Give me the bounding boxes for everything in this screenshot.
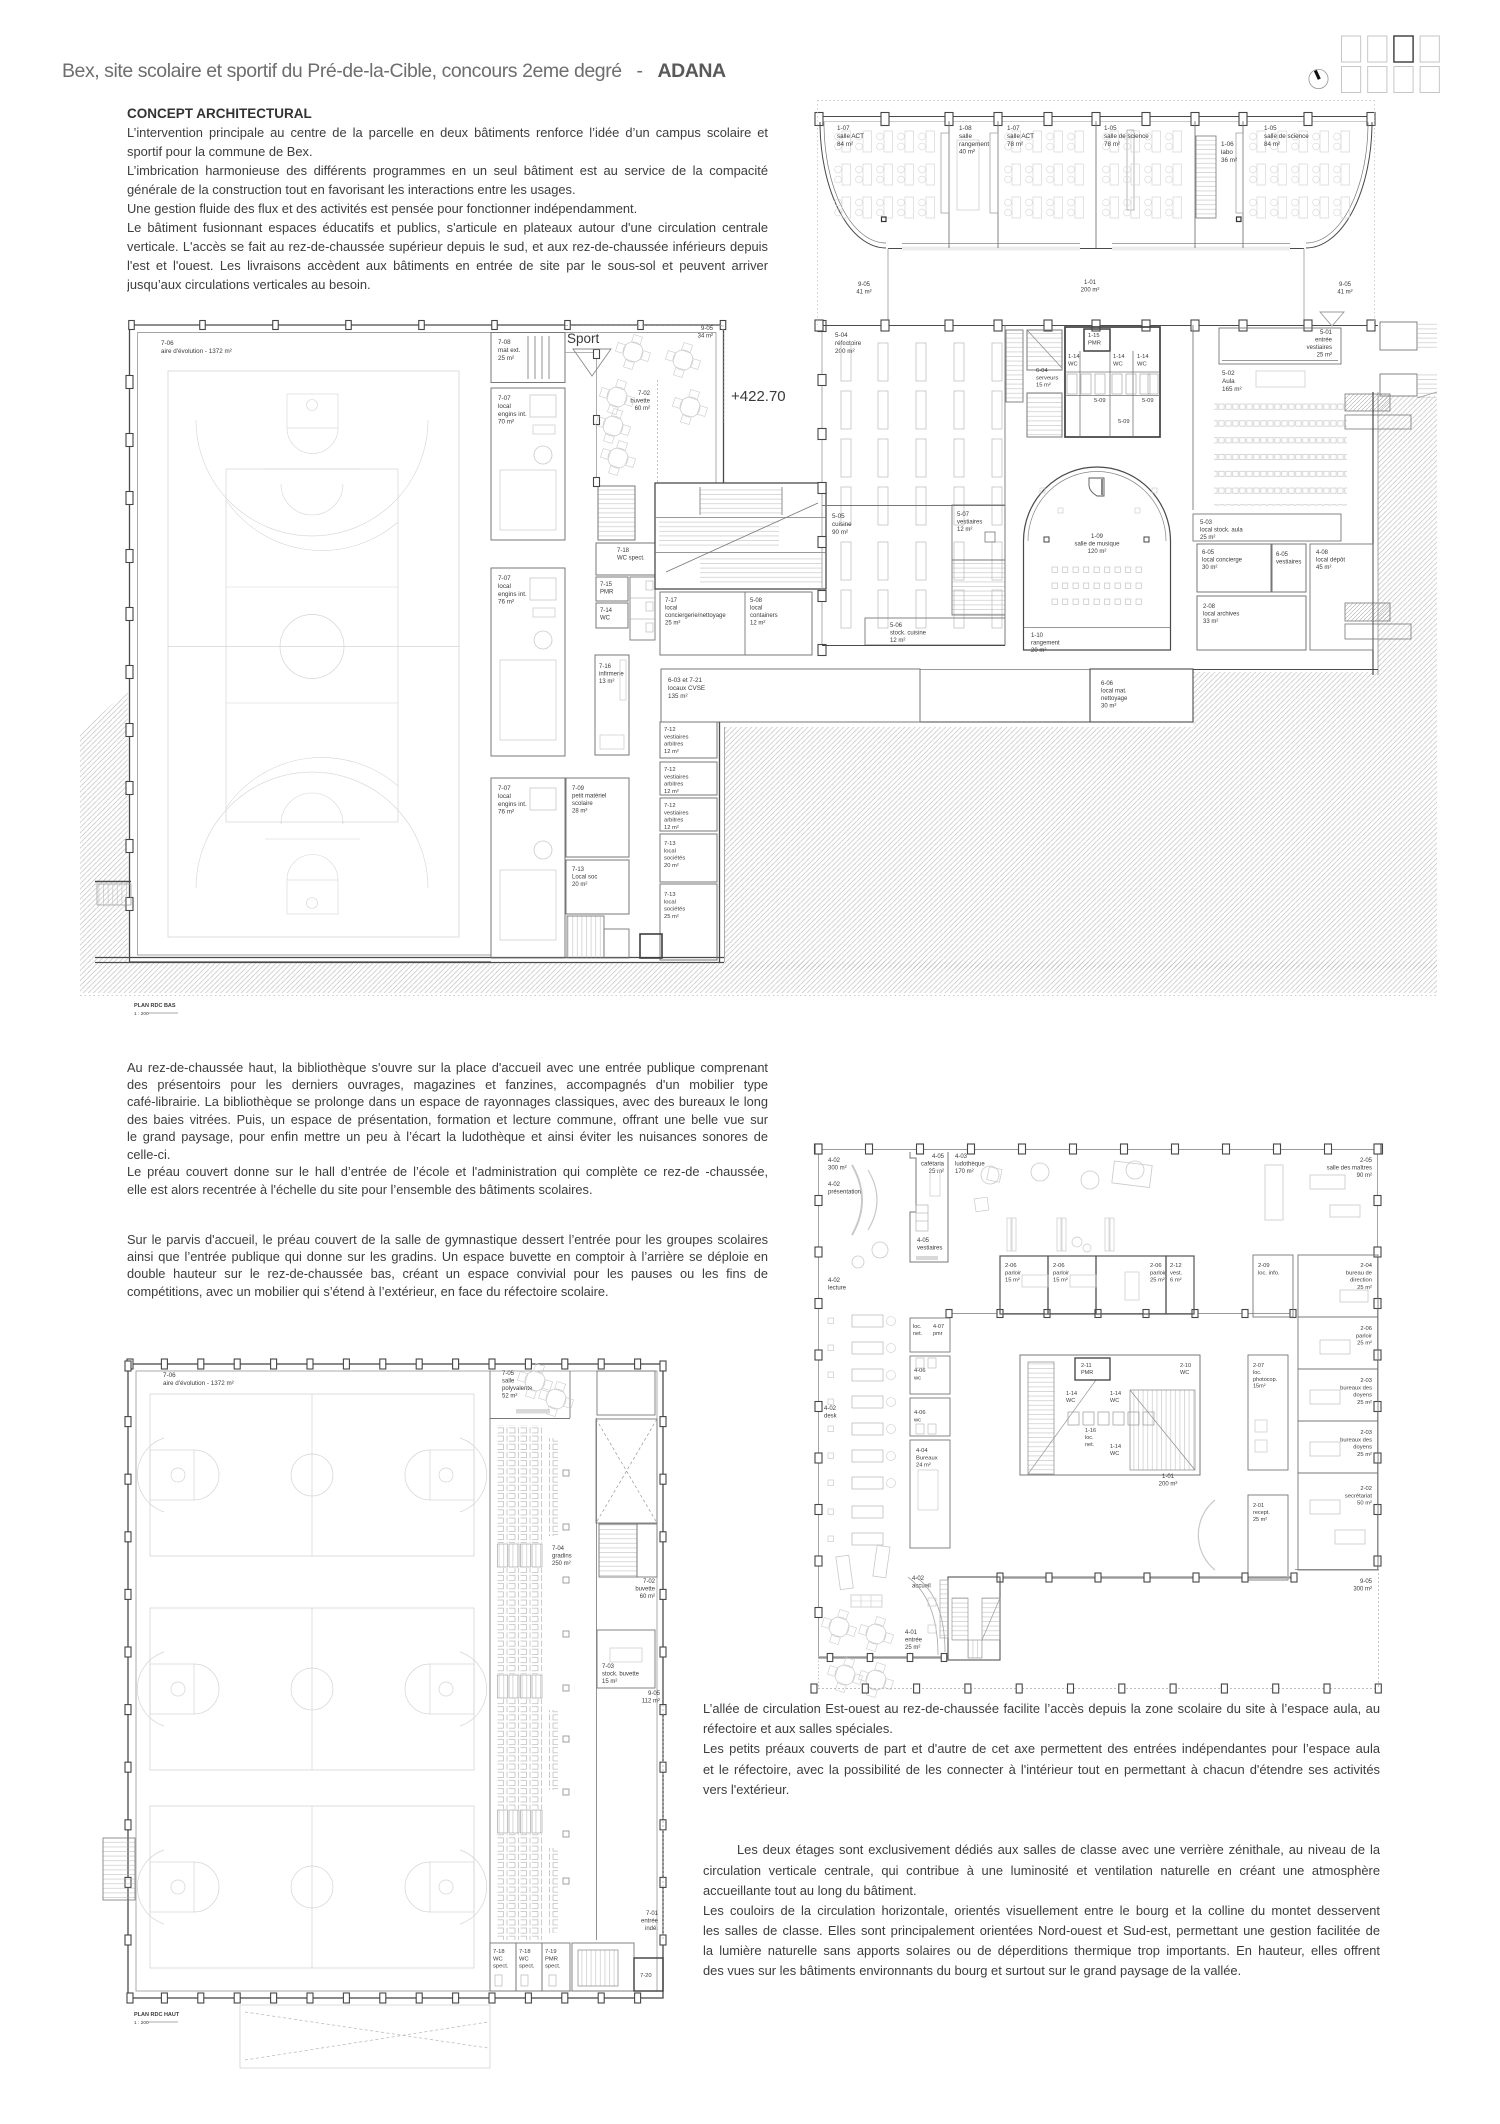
svg-text:1-15PMR: 1-15PMR	[1088, 333, 1101, 346]
svg-text:2-03bureaux desdoyens25 m²: 2-03bureaux desdoyens25 m²	[1340, 1378, 1372, 1406]
svg-text:1-14WC: 1-14WC	[1066, 1391, 1077, 1404]
svg-text:9-0534 m²: 9-0534 m²	[698, 326, 714, 340]
svg-text:5-08localcontainers12 m²: 5-08localcontainers12 m²	[750, 598, 778, 627]
svg-text:7-13localsociétés20 m²: 7-13localsociétés20 m²	[664, 841, 685, 869]
svg-text:6-05vestiaires: 6-05vestiaires	[1276, 552, 1301, 566]
svg-text:5-06stock. cuisine12 m²: 5-06stock. cuisine12 m²	[890, 623, 927, 644]
svg-text:1-07salle ACT78 m²: 1-07salle ACT78 m²	[1007, 125, 1034, 148]
svg-text:2-05salle des maîtres90 m²: 2-05salle des maîtres90 m²	[1327, 1158, 1373, 1179]
svg-text:1-16loc.net.: 1-16loc.net.	[1085, 1428, 1096, 1448]
svg-text:2-06parloir25 m²: 2-06parloir25 m²	[1150, 1263, 1166, 1284]
svg-text:6-06local mat.nettoyage30 m²: 6-06local mat.nettoyage30 m²	[1101, 681, 1128, 710]
svg-text:1-08sallerangement40 m²: 1-08sallerangement40 m²	[959, 125, 989, 156]
svg-text:5-02Aula165 m²: 5-02Aula165 m²	[1222, 370, 1242, 393]
svg-text:7-13Local soc20 m²: 7-13Local soc20 m²	[572, 867, 597, 888]
svg-text:2-01recept.25 m²: 2-01recept.25 m²	[1253, 1503, 1270, 1523]
svg-text:4-02présentation: 4-02présentation	[828, 1182, 861, 1196]
svg-text:7-15PMR: 7-15PMR	[600, 582, 614, 596]
svg-text:9-05300 m²: 9-05300 m²	[1353, 1579, 1372, 1593]
svg-text:2-06parloir25 m²: 2-06parloir25 m²	[1356, 1326, 1372, 1347]
svg-text:2-09loc. info.: 2-09loc. info.	[1258, 1263, 1280, 1276]
svg-text:7-18WCspect.: 7-18WCspect.	[493, 1949, 509, 1970]
svg-text:1-14WC: 1-14WC	[1110, 1444, 1121, 1457]
svg-text:6-05local concierge30 m²: 6-05local concierge30 m²	[1202, 550, 1243, 571]
svg-text:7-18WC spect.: 7-18WC spect.	[617, 548, 645, 562]
svg-text:loc.net.: loc.net.	[913, 1324, 923, 1337]
svg-text:4-02lecture: 4-02lecture	[828, 1278, 847, 1292]
svg-text:6-03 et 7-21locaux CVSE135 m²: 6-03 et 7-21locaux CVSE135 m²	[668, 677, 705, 700]
svg-text:5-07vestiaires12 m²: 5-07vestiaires12 m²	[957, 512, 982, 533]
svg-text:7-06aire d'évolution - 1372 m²: 7-06aire d'évolution - 1372 m²	[161, 340, 232, 355]
svg-text:5-05cuisine90 m²: 5-05cuisine90 m²	[832, 513, 852, 536]
svg-text:2-08local archives33 m²: 2-08local archives33 m²	[1203, 604, 1239, 625]
svg-text:2-11PMR: 2-11PMR	[1081, 1363, 1093, 1376]
svg-text:9-0541 m²: 9-0541 m²	[1337, 282, 1352, 296]
svg-text:1-09salle de musique120 m²: 1-09salle de musique120 m²	[1074, 534, 1120, 555]
svg-text:1 : 200: 1 : 200	[134, 2020, 149, 2026]
svg-text:7-01entréeindé.: 7-01entréeindé.	[641, 1911, 659, 1932]
svg-text:7-06aire d'évolution - 1372 m²: 7-06aire d'évolution - 1372 m²	[163, 1372, 234, 1387]
svg-text:2-06parloir15 m²: 2-06parloir15 m²	[1053, 1263, 1069, 1284]
svg-text:PLAN RDC HAUT: PLAN RDC HAUT	[134, 2012, 180, 2018]
svg-text:1-07salle ACT84 m²: 1-07salle ACT84 m²	[837, 125, 864, 148]
svg-text:1-01200 m²: 1-01200 m²	[1159, 1474, 1178, 1488]
svg-text:2-12vest.6 m²: 2-12vest.6 m²	[1170, 1263, 1183, 1284]
svg-text:4-02desk: 4-02desk	[824, 1406, 838, 1420]
svg-text:4-08local dépôt45 m²: 4-08local dépôt45 m²	[1316, 550, 1345, 571]
svg-text:7-12vestiairesarbitres12 m²: 7-12vestiairesarbitres12 m²	[664, 767, 689, 795]
svg-text:2-10WC: 2-10WC	[1180, 1363, 1191, 1376]
svg-text:1-14WC: 1-14WC	[1137, 354, 1149, 367]
svg-text:2-03bureaux desdoyens25 m²: 2-03bureaux desdoyens25 m²	[1340, 1430, 1372, 1458]
svg-text:2-07loc.photocop.15m²: 2-07loc.photocop.15m²	[1253, 1363, 1278, 1390]
svg-text:7-18WCspect.: 7-18WCspect.	[519, 1949, 535, 1970]
svg-text:7-07localengins int.76 m²: 7-07localengins int.76 m²	[498, 575, 527, 606]
svg-text:4-03ludothèque170 m²: 4-03ludothèque170 m²	[955, 1154, 985, 1175]
svg-text:7-12vestiairesarbitres12 m²: 7-12vestiairesarbitres12 m²	[664, 803, 689, 831]
svg-text:7-05sallepolyvalente52 m²: 7-05sallepolyvalente52 m²	[502, 1371, 533, 1400]
svg-text:4-05vestiaires: 4-05vestiaires	[917, 1238, 942, 1252]
svg-text:2-02secrétariat50 m²: 2-02secrétariat50 m²	[1345, 1486, 1372, 1507]
svg-text:7-08mat ext.25 m²: 7-08mat ext.25 m²	[498, 339, 521, 362]
svg-text:4-05cafétaria25 m²: 4-05cafétaria25 m²	[921, 1154, 945, 1175]
svg-text:5-09: 5-09	[1094, 398, 1106, 404]
svg-text:1-14WC: 1-14WC	[1068, 354, 1080, 367]
svg-text:6-04serveurs15 m²: 6-04serveurs15 m²	[1036, 368, 1058, 389]
svg-text:7-03stock. buvette15 m²: 7-03stock. buvette15 m²	[602, 1664, 640, 1685]
svg-text:1-01200 m²: 1-01200 m²	[1081, 280, 1100, 294]
svg-text:7-07localengins int.70 m²: 7-07localengins int.70 m²	[498, 395, 527, 426]
svg-text:7-12vestiairesarbitres12 m²: 7-12vestiairesarbitres12 m²	[664, 727, 689, 755]
svg-text:1-14WC: 1-14WC	[1113, 354, 1125, 367]
svg-text:4-04Bureaux24 m²: 4-04Bureaux24 m²	[916, 1448, 938, 1469]
svg-text:+422.70: +422.70	[731, 388, 786, 405]
svg-text:7-20: 7-20	[640, 1973, 652, 1979]
svg-text:4-02300 m²: 4-02300 m²	[828, 1158, 847, 1172]
svg-text:4-01entrée25 m²: 4-01entrée25 m²	[905, 1630, 923, 1651]
svg-text:1-14WC: 1-14WC	[1110, 1391, 1121, 1404]
svg-text:5-09: 5-09	[1142, 398, 1154, 404]
svg-text:9-0541 m²: 9-0541 m²	[856, 282, 871, 296]
svg-text:4-07pmr: 4-07pmr	[933, 1324, 944, 1337]
svg-text:5-09: 5-09	[1118, 419, 1130, 425]
svg-text:PLAN RDC BAS: PLAN RDC BAS	[134, 1003, 176, 1009]
svg-text:2-04bureau dedirection25 m²: 2-04bureau dedirection25 m²	[1346, 1263, 1373, 1291]
svg-text:2-06parloir15 m²: 2-06parloir15 m²	[1005, 1263, 1021, 1284]
svg-text:4-06wc: 4-06wc	[913, 1368, 926, 1381]
svg-text:9-05112 m²: 9-05112 m²	[642, 1691, 661, 1705]
svg-text:1 : 200: 1 : 200	[134, 1011, 149, 1017]
svg-text:7-17localconciergerie/nettoyag: 7-17localconciergerie/nettoyage25 m²	[665, 598, 726, 627]
svg-text:Sport: Sport	[567, 331, 600, 346]
svg-text:7-09petit matérielscolaire28 m: 7-09petit matérielscolaire28 m²	[572, 786, 606, 815]
svg-text:1-10rangement20 m²: 1-10rangement20 m²	[1031, 633, 1060, 654]
svg-text:7-02buvette60 m²: 7-02buvette60 m²	[635, 1579, 655, 1600]
svg-text:7-19PMRspect.: 7-19PMRspect.	[545, 1949, 561, 1970]
svg-text:5-01entréevestiaires25 m²: 5-01entréevestiaires25 m²	[1307, 330, 1333, 359]
svg-text:1-06labo36 m²: 1-06labo36 m²	[1221, 141, 1237, 164]
svg-text:7-13localsociétés25 m²: 7-13localsociétés25 m²	[664, 892, 685, 920]
svg-text:4-06wc: 4-06wc	[913, 1410, 926, 1423]
svg-text:7-07localengins int.76 m²: 7-07localengins int.76 m²	[498, 785, 527, 816]
svg-text:7-04gradins250 m²: 7-04gradins250 m²	[552, 1546, 572, 1567]
svg-text:5-03local stock. aula25 m²: 5-03local stock. aula25 m²	[1200, 520, 1243, 541]
svg-text:7-14WC: 7-14WC	[600, 608, 613, 622]
svg-text:7-16infirmerie13 m²: 7-16infirmerie13 m²	[599, 664, 624, 685]
